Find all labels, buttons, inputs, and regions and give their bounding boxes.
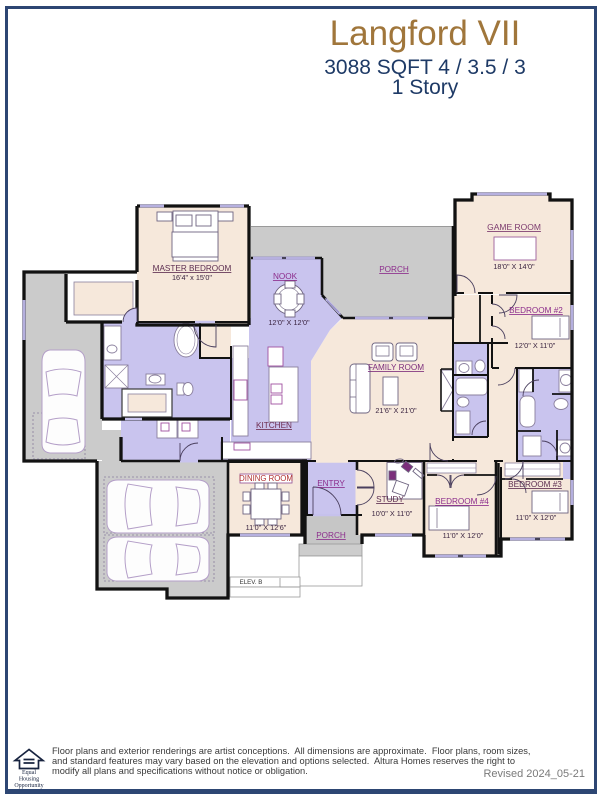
svg-text:BEDROOM #4: BEDROOM #4 bbox=[435, 497, 489, 506]
svg-text:Housing: Housing bbox=[19, 777, 39, 783]
svg-text:BEDROOM #3: BEDROOM #3 bbox=[508, 480, 562, 489]
svg-text:21'6" X 21'0": 21'6" X 21'0" bbox=[375, 406, 417, 415]
svg-text:PORCH: PORCH bbox=[316, 531, 346, 540]
svg-text:BEDROOM #2: BEDROOM #2 bbox=[509, 306, 563, 315]
svg-text:16'4" x 15'0": 16'4" x 15'0" bbox=[172, 273, 212, 282]
svg-text:12'0" X 12'0": 12'0" X 12'0" bbox=[268, 318, 310, 327]
svg-text:MASTER BEDROOM: MASTER BEDROOM bbox=[153, 264, 232, 273]
svg-text:GAME ROOM: GAME ROOM bbox=[487, 222, 541, 232]
svg-text:NOOK: NOOK bbox=[273, 272, 298, 281]
svg-text:ENTRY: ENTRY bbox=[317, 479, 345, 488]
svg-text:11'0" X 12'0": 11'0" X 12'0" bbox=[443, 531, 484, 540]
svg-text:STUDY: STUDY bbox=[376, 495, 404, 504]
svg-text:11'0" X 12'0": 11'0" X 12'0" bbox=[516, 513, 557, 522]
svg-text:10'0" X 11'0": 10'0" X 11'0" bbox=[372, 509, 413, 518]
svg-text:FAMILY ROOM: FAMILY ROOM bbox=[368, 363, 424, 372]
svg-text:PORCH: PORCH bbox=[379, 265, 409, 274]
svg-text:KITCHEN: KITCHEN bbox=[256, 421, 292, 430]
svg-text:Equal: Equal bbox=[22, 770, 36, 776]
svg-text:12'0" X 11'0": 12'0" X 11'0" bbox=[515, 341, 556, 350]
svg-text:11'0" X 12'6": 11'0" X 12'6" bbox=[246, 523, 287, 532]
svg-text:18'0" X 14'0": 18'0" X 14'0" bbox=[493, 262, 535, 271]
svg-text:ELEV. B: ELEV. B bbox=[240, 579, 263, 586]
svg-text:DINING ROOM: DINING ROOM bbox=[239, 474, 293, 483]
svg-text:Opportunity: Opportunity bbox=[14, 783, 43, 789]
